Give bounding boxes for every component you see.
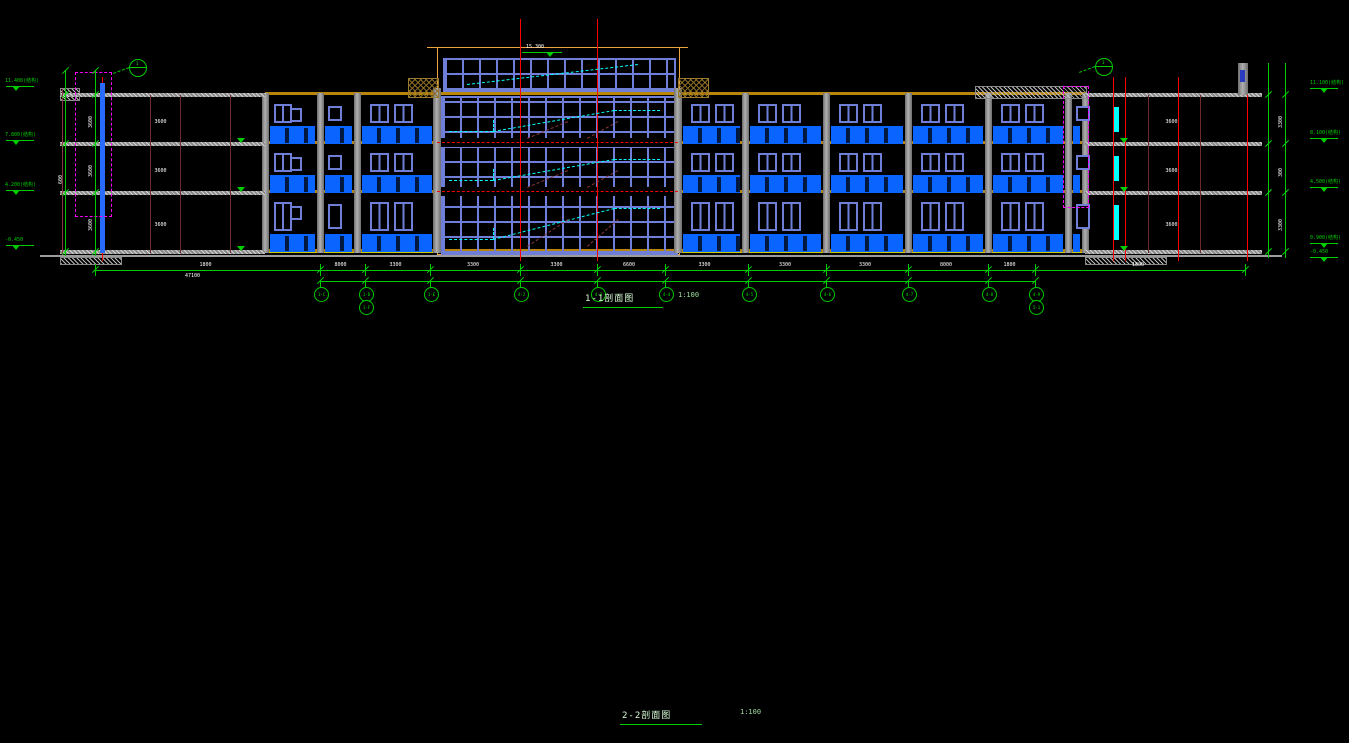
window [691, 104, 710, 123]
dimension-value: 3300 [1279, 218, 1284, 230]
level-label: 4.200(结构) [5, 183, 36, 188]
level-triangle-icon [12, 190, 20, 195]
stair-flight-dashed [449, 180, 493, 181]
dim-extension [1035, 264, 1036, 276]
window [370, 153, 389, 172]
window [328, 155, 342, 170]
window [394, 202, 413, 231]
roof-level-label: 15.300 [526, 45, 544, 50]
window [839, 202, 858, 231]
window [1025, 153, 1044, 172]
grid-centerline-red [597, 19, 598, 261]
level-line [6, 140, 34, 141]
window [715, 202, 734, 231]
balcony-railing [362, 175, 432, 193]
axis-bubble: 5-1 [1029, 300, 1044, 315]
balcony-railing [325, 175, 352, 193]
title-underline [620, 724, 702, 725]
balcony-railing [750, 175, 821, 193]
interior-level-triangle-icon [1120, 246, 1128, 251]
window [290, 157, 302, 171]
level-label: 7.800(结构) [5, 133, 36, 138]
window [394, 104, 413, 123]
dim-extension [988, 264, 989, 276]
level-triangle-icon [12, 86, 20, 91]
level-triangle-icon [1320, 243, 1328, 248]
dimension-value: 3300 [467, 263, 479, 268]
ground-hatch [1085, 257, 1167, 265]
window [1025, 202, 1044, 231]
dimension-total: 47100 [185, 274, 200, 279]
window [290, 206, 302, 220]
grid-centerline-red [520, 19, 521, 261]
detail-leader-line [1079, 66, 1095, 73]
dimension-value: 1800 [1132, 263, 1144, 268]
level-line [6, 86, 34, 87]
window [1001, 202, 1020, 231]
level-triangle-icon [1320, 88, 1328, 93]
window [782, 202, 801, 231]
dim-extension [597, 264, 598, 276]
drawing-title: 2-2剖面图 [622, 712, 671, 721]
level-triangle-icon [1320, 257, 1328, 262]
section-wall [62, 89, 63, 255]
window [1025, 104, 1044, 123]
room-dimension: 3600 [155, 120, 167, 125]
detail-callout-ref: 1 [136, 62, 138, 66]
axis-bubble: 1-E [424, 287, 439, 302]
cad-canvas: 15.3003600360036003600360036001118008000… [0, 0, 1349, 743]
axis-bubble: 1-F [359, 300, 374, 315]
dimension-value: 3300 [859, 263, 871, 268]
detail-region-dashed-box [1063, 86, 1089, 208]
balcony-railing [913, 175, 983, 193]
stair-flight-dashed [614, 110, 660, 111]
tower-floor-red-line [437, 142, 678, 143]
window [945, 153, 964, 172]
dimension-line [95, 270, 1245, 271]
drawing-title-text: 2-2剖面图 [622, 711, 671, 721]
axis-bubble: 1-C [314, 287, 329, 302]
detail-leader-line [113, 67, 129, 74]
window [394, 153, 413, 172]
dim-extension [520, 264, 521, 276]
stair-flight-dashed [493, 169, 494, 180]
partition-wall [180, 95, 181, 253]
detail-callout-divider [1096, 66, 1112, 67]
balcony-railing [913, 234, 983, 252]
window [863, 202, 882, 231]
interior-level-triangle-icon [237, 246, 245, 251]
dimension-value: 3600 [89, 218, 94, 230]
window [715, 104, 734, 123]
balcony-railing [683, 175, 740, 193]
dimension-value: 8000 [940, 263, 952, 268]
balcony-railing [913, 126, 983, 144]
dim-extension [430, 264, 431, 276]
balcony-railing [325, 234, 352, 252]
level-triangle-icon [1320, 138, 1328, 143]
facade-column [262, 93, 269, 253]
balcony-railing [270, 126, 315, 144]
window [715, 153, 734, 172]
window [839, 153, 858, 172]
window [921, 104, 940, 123]
level-triangle-icon [12, 140, 20, 145]
dimension-value: 3300 [1279, 115, 1284, 127]
window [758, 202, 777, 231]
roof-hatch [408, 78, 439, 98]
window [945, 202, 964, 231]
window [1001, 104, 1020, 123]
drawing-scale-text: 1:100 [740, 708, 761, 716]
window [328, 204, 342, 229]
window [290, 108, 302, 122]
title-underline [583, 307, 663, 308]
drawing-scale: 1:100 [678, 292, 699, 299]
window [758, 153, 777, 172]
dimension-value: 3300 [779, 263, 791, 268]
window [370, 202, 389, 231]
window-in-section [1114, 205, 1119, 240]
partition-wall [1200, 95, 1201, 253]
dimension-value: 3300 [551, 263, 563, 268]
drawing-title: 1-1剖面图 [585, 295, 634, 304]
level-line [6, 190, 34, 191]
roof-stub-window [1240, 70, 1245, 82]
dimension-value: 6600 [623, 263, 635, 268]
balcony-railing [362, 126, 432, 144]
window [370, 104, 389, 123]
level-label: 11.400(结构) [5, 79, 39, 84]
dim-extension [908, 264, 909, 276]
stair-flight-dashed [449, 239, 493, 240]
facade-column [905, 93, 912, 253]
dim-extension [748, 264, 749, 276]
drawing-title-text: 1-1剖面图 [585, 294, 634, 304]
window-in-section [1114, 107, 1119, 132]
floor-slab [1085, 93, 1262, 97]
dim-extension [320, 264, 321, 276]
drawing-scale: 1:100 [740, 709, 761, 716]
dimension-chain [65, 70, 66, 256]
tower-floor-red-line [437, 191, 678, 192]
balcony-railing [831, 126, 903, 144]
stair-flight-dashed [614, 208, 660, 209]
window [863, 104, 882, 123]
level-label: -0.450 [5, 238, 23, 243]
detail-callout-divider [130, 67, 146, 68]
dim-extension [1245, 264, 1246, 276]
dim-extension [95, 264, 96, 276]
window [921, 153, 940, 172]
level-label: 0.900(结构) [1310, 236, 1341, 241]
room-dimension: 3600 [155, 223, 167, 228]
level-label: -0.450 [1310, 250, 1328, 255]
level-line [6, 245, 34, 246]
window [839, 104, 858, 123]
floor-slab [60, 250, 265, 254]
window [328, 106, 342, 121]
detail-callout-bubble: 1 [1095, 58, 1113, 76]
tower-edge-column [433, 88, 441, 253]
axis-bubble: 4-6 [820, 287, 835, 302]
drawing-section-1-1: 15.3003600360036003600360036001118008000… [0, 0, 1349, 370]
grid-line-red [1247, 77, 1248, 261]
floor-slab [1085, 142, 1262, 146]
window [863, 153, 882, 172]
level-triangle-icon [546, 52, 554, 57]
window [691, 153, 710, 172]
level-label: 11.100(结构) [1310, 81, 1344, 86]
window [758, 104, 777, 123]
dimension-value: 3300 [390, 263, 402, 268]
grid-line-red [1125, 77, 1126, 261]
roof-hatch [678, 78, 709, 98]
axis-bubble: 4-7 [902, 287, 917, 302]
interior-level-triangle-icon [1120, 187, 1128, 192]
grid-line-red [1178, 77, 1179, 261]
room-dimension: 3600 [1166, 120, 1178, 125]
dimension-chain [95, 70, 96, 256]
window [1001, 153, 1020, 172]
level-triangle-icon [12, 245, 20, 250]
detail-callout-bubble: 1 [129, 59, 147, 77]
facade-column [317, 93, 324, 253]
level-label: 8.100(结构) [1310, 131, 1341, 136]
drawing-section-2-2: 15.3003600360036003600360036001118000305… [0, 370, 1349, 743]
balcony-railing [1073, 234, 1080, 252]
balcony-railing [270, 175, 315, 193]
roof-level-line [522, 52, 562, 53]
room-dimension: 3600 [1166, 223, 1178, 228]
partition-wall [1148, 95, 1149, 253]
detail-callout-ref: 1 [1102, 61, 1104, 65]
window [921, 202, 940, 231]
partition-wall [150, 95, 151, 253]
window [782, 104, 801, 123]
window [945, 104, 964, 123]
stair-flight-dashed [449, 131, 493, 132]
dimension-value: 1800 [1004, 263, 1016, 268]
balcony-railing [993, 126, 1063, 144]
ground-hatch [60, 257, 122, 265]
dimension-value: 3300 [699, 263, 711, 268]
stair-flight-dashed [614, 159, 660, 160]
floor-slab [1085, 250, 1262, 254]
tower-edge-column [674, 88, 682, 253]
axis-bubble: 4-8 [982, 287, 997, 302]
facade-column [823, 93, 830, 253]
window [782, 153, 801, 172]
balcony-railing [362, 234, 432, 252]
facade-column [742, 93, 749, 253]
balcony-railing [750, 234, 821, 252]
balcony-railing [683, 234, 740, 252]
axis-bubble: 4-5 [742, 287, 757, 302]
stair-flight-dashed [493, 228, 494, 239]
stair-tower-roofline [427, 47, 688, 48]
dimension-value: 600 [59, 175, 64, 184]
balcony-railing [270, 234, 315, 252]
interior-level-triangle-icon [237, 138, 245, 143]
balcony-railing [993, 175, 1063, 193]
room-dimension: 3600 [1166, 169, 1178, 174]
window [691, 202, 710, 231]
balcony-railing [325, 126, 352, 144]
room-dimension: 3600 [155, 169, 167, 174]
balcony-railing [831, 175, 903, 193]
dimension-value: 3600 [89, 115, 94, 127]
dimension-value: 8000 [335, 263, 347, 268]
facade-column [354, 93, 361, 253]
penthouse-curtain-wall [443, 58, 676, 92]
dimension-value: 3600 [89, 164, 94, 176]
dimension-value: 300 [1279, 167, 1284, 176]
window-in-section [1114, 156, 1119, 181]
interior-level-triangle-icon [1120, 138, 1128, 143]
drawing-scale-text: 1:100 [678, 291, 699, 299]
axis-bubble: 4-2 [514, 287, 529, 302]
stair-flight-dashed [493, 120, 494, 131]
dim-extension [365, 264, 366, 276]
interior-level-triangle-icon [237, 187, 245, 192]
facade-column [985, 93, 992, 253]
dim-extension [826, 264, 827, 276]
floor-slab [1085, 191, 1262, 195]
balcony-railing [750, 126, 821, 144]
dim-extension [665, 264, 666, 276]
balcony-railing [683, 126, 740, 144]
balcony-railing [993, 234, 1063, 252]
level-triangle-icon [1320, 187, 1328, 192]
partition-wall [230, 95, 231, 253]
balcony-railing [831, 234, 903, 252]
dimension-value: 1800 [200, 263, 212, 268]
level-label: 4.500(结构) [1310, 180, 1341, 185]
axis-bubble: 4-4 [659, 287, 674, 302]
